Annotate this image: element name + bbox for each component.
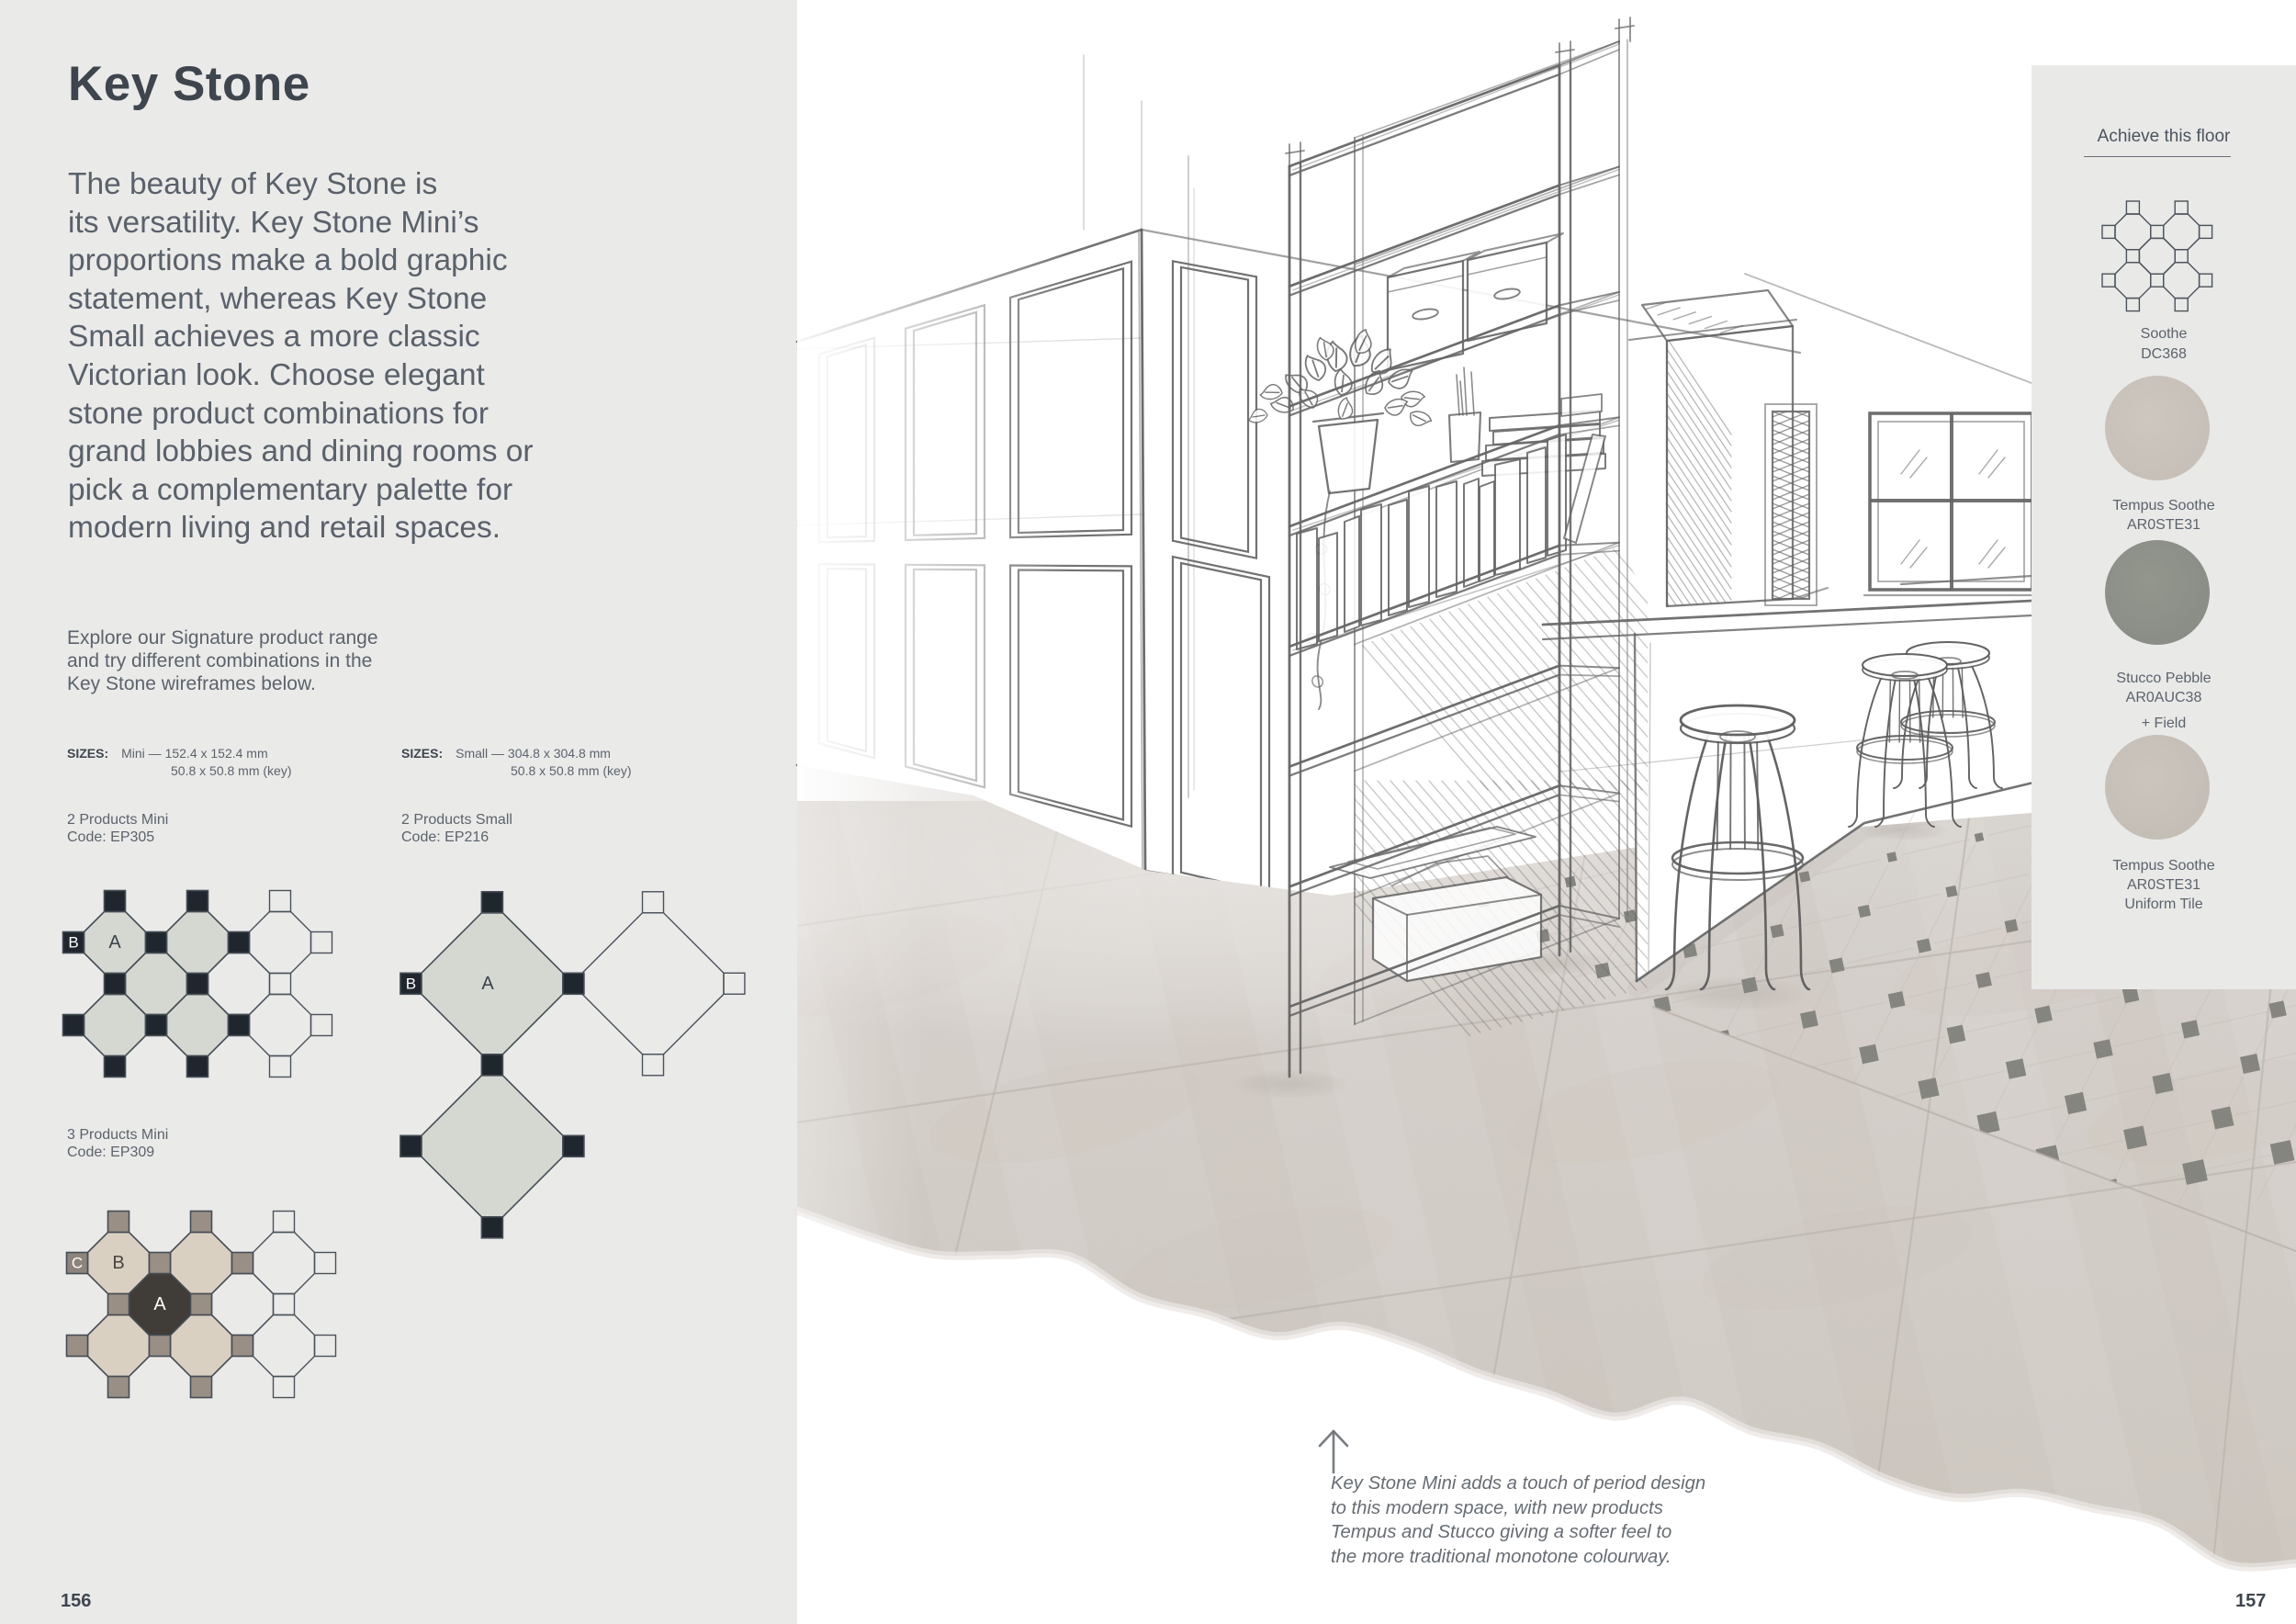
svg-text:A: A <box>153 1294 166 1314</box>
svg-text:C: C <box>72 1255 83 1272</box>
svg-text:B: B <box>68 934 78 952</box>
svg-text:A: A <box>108 932 121 953</box>
svg-text:A: A <box>481 974 494 994</box>
svg-text:B: B <box>112 1253 124 1273</box>
svg-text:B: B <box>406 975 416 992</box>
